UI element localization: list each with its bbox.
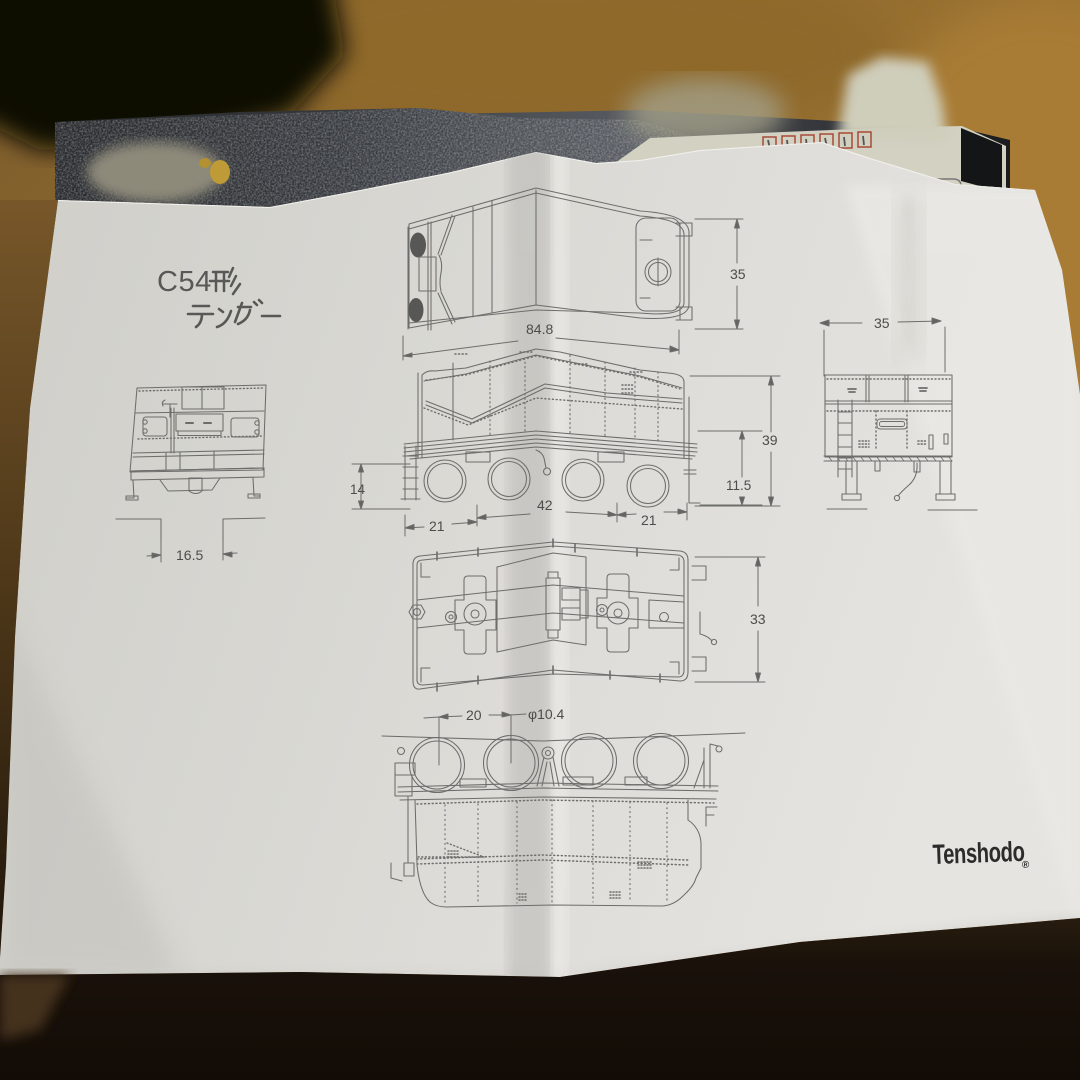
svg-text:®: ® [1022, 860, 1030, 871]
svg-text:21: 21 [429, 518, 445, 534]
svg-text:14: 14 [350, 482, 366, 497]
svg-text:φ10.4: φ10.4 [528, 706, 565, 722]
svg-text:35: 35 [874, 315, 890, 331]
svg-text:11.5: 11.5 [726, 478, 751, 493]
svg-text:84.8: 84.8 [526, 321, 553, 337]
svg-text:21: 21 [641, 512, 657, 528]
svg-text:35: 35 [730, 266, 746, 282]
svg-text:C54: C54 [157, 266, 212, 298]
svg-text:42: 42 [537, 497, 553, 513]
svg-text:33: 33 [750, 611, 766, 627]
svg-text:20: 20 [466, 707, 482, 723]
svg-text:39: 39 [762, 432, 778, 448]
svg-text:16.5: 16.5 [176, 547, 203, 563]
svg-text:Tenshodo: Tenshodo [932, 837, 1025, 871]
